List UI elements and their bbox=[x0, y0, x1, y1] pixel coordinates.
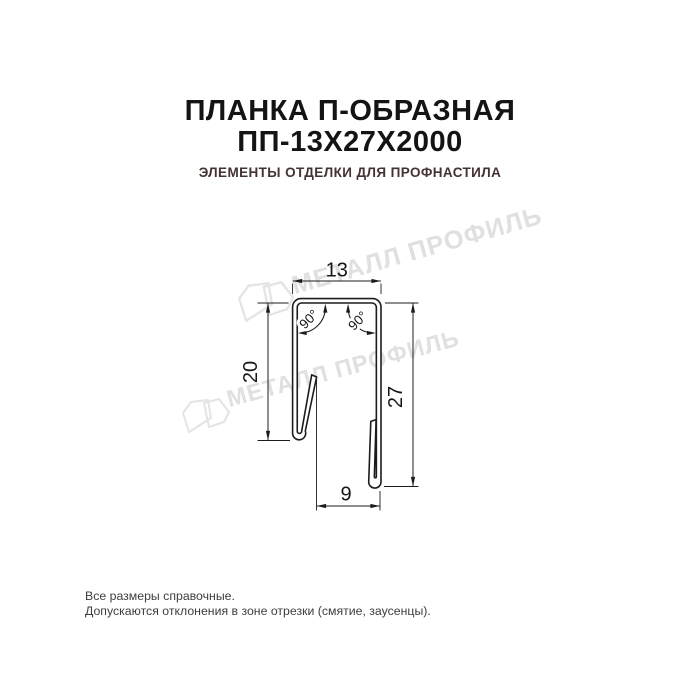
angle-dim-left: 90° bbox=[296, 304, 327, 335]
dim-label-right-height: 27 bbox=[385, 386, 407, 408]
watermark-text: МЕТАЛЛ ПРОФИЛЬ bbox=[289, 202, 546, 300]
metall-profil-logo-icon bbox=[183, 399, 229, 432]
footnote-line2: Допускаются отклонения в зоне отрезки (с… bbox=[85, 604, 431, 619]
spec-sheet: ПЛАНКА П-ОБРАЗНАЯ ПП-13Х27Х2000 ЭЛЕМЕНТЫ… bbox=[0, 0, 700, 700]
arrow-down-icon bbox=[266, 431, 270, 441]
dim-label-top-width: 13 bbox=[326, 260, 348, 282]
dim-label-left-height: 20 bbox=[240, 361, 262, 383]
arrow-right-icon bbox=[367, 331, 376, 335]
arrow-up-icon bbox=[323, 304, 327, 313]
footnote-line1: Все размеры справочные. bbox=[85, 589, 431, 604]
metall-profil-logo-icon bbox=[239, 282, 293, 321]
angle-dim-right: 90° bbox=[345, 304, 375, 335]
angle-label-left: 90° bbox=[296, 307, 321, 332]
arrow-left-icon bbox=[317, 504, 327, 508]
arrow-down-icon bbox=[411, 477, 415, 487]
arrow-right-icon bbox=[371, 279, 381, 283]
arrow-up-icon bbox=[411, 303, 415, 313]
dim-label-bottom-width: 9 bbox=[340, 484, 351, 506]
dim-right-height: 27 bbox=[384, 303, 419, 487]
arrow-up-icon bbox=[346, 304, 350, 313]
watermark-lower: МЕТАЛЛ ПРОФИЛЬ bbox=[183, 325, 462, 432]
arrow-right-icon bbox=[370, 504, 380, 508]
footnotes: Все размеры справочные. Допускаются откл… bbox=[85, 589, 431, 619]
